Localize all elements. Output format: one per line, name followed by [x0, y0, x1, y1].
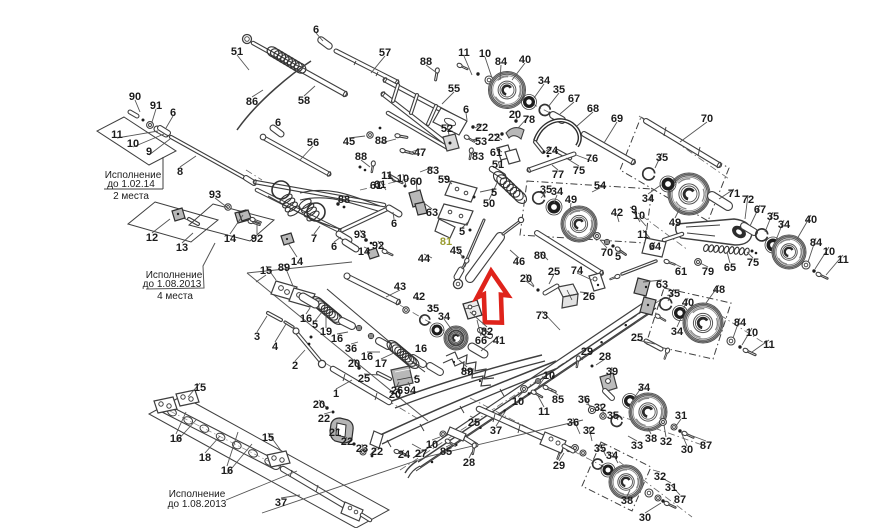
svg-text:69: 69	[611, 113, 623, 125]
svg-text:57: 57	[379, 47, 391, 59]
svg-text:13: 13	[176, 242, 188, 254]
svg-text:88: 88	[375, 135, 387, 147]
svg-text:11: 11	[538, 406, 550, 418]
svg-text:30: 30	[639, 512, 651, 524]
svg-text:85: 85	[552, 394, 564, 406]
svg-text:2 места: 2 места	[113, 191, 149, 202]
svg-text:37: 37	[275, 497, 287, 509]
svg-text:80: 80	[534, 250, 546, 262]
svg-text:25: 25	[548, 266, 560, 278]
svg-text:17: 17	[375, 358, 387, 370]
svg-text:5: 5	[414, 374, 420, 386]
svg-text:35: 35	[553, 84, 565, 96]
svg-text:14: 14	[358, 246, 371, 258]
svg-text:74: 74	[571, 265, 584, 277]
svg-text:14: 14	[224, 233, 237, 245]
svg-text:8: 8	[177, 166, 183, 178]
svg-text:49: 49	[565, 194, 577, 206]
svg-text:76: 76	[586, 153, 598, 165]
svg-text:10: 10	[746, 327, 758, 339]
svg-text:23: 23	[356, 443, 368, 455]
svg-text:87: 87	[674, 494, 686, 506]
svg-text:93: 93	[209, 189, 221, 201]
svg-text:50: 50	[483, 198, 495, 210]
svg-text:16: 16	[415, 343, 427, 355]
svg-text:25: 25	[631, 332, 643, 344]
svg-text:32: 32	[660, 436, 672, 448]
svg-text:42: 42	[413, 291, 425, 303]
svg-text:11: 11	[111, 129, 123, 141]
svg-text:88: 88	[338, 194, 350, 206]
svg-text:40: 40	[519, 54, 531, 66]
svg-text:14: 14	[291, 256, 304, 268]
svg-text:34: 34	[671, 326, 684, 338]
svg-text:7: 7	[311, 233, 317, 245]
svg-text:67: 67	[754, 204, 766, 216]
svg-text:34: 34	[538, 75, 551, 87]
svg-text:20: 20	[509, 109, 521, 121]
svg-text:16: 16	[300, 313, 312, 325]
svg-text:6: 6	[170, 107, 176, 119]
svg-text:35: 35	[668, 288, 680, 300]
svg-text:61: 61	[370, 180, 382, 192]
svg-text:20: 20	[520, 273, 532, 285]
svg-text:58: 58	[298, 95, 310, 107]
svg-text:10: 10	[633, 210, 645, 222]
svg-text:70: 70	[701, 113, 713, 125]
svg-text:35: 35	[607, 410, 619, 422]
svg-text:83: 83	[472, 151, 484, 163]
svg-text:16: 16	[361, 351, 373, 363]
svg-text:48: 48	[713, 284, 725, 296]
svg-text:89: 89	[461, 366, 473, 378]
svg-text:31: 31	[665, 482, 677, 494]
svg-text:36: 36	[578, 394, 590, 406]
svg-text:15: 15	[194, 382, 206, 394]
svg-text:92: 92	[372, 240, 384, 252]
svg-text:6: 6	[463, 104, 469, 116]
svg-text:11: 11	[763, 339, 775, 351]
svg-text:93: 93	[354, 229, 366, 241]
svg-text:47: 47	[414, 147, 426, 159]
svg-text:10: 10	[426, 439, 438, 451]
svg-text:до 1.08.2013: до 1.08.2013	[143, 279, 202, 290]
svg-text:63: 63	[656, 279, 668, 291]
svg-text:78: 78	[523, 114, 535, 126]
svg-text:35: 35	[656, 152, 668, 164]
svg-text:28: 28	[463, 457, 475, 469]
svg-text:32: 32	[594, 402, 606, 414]
svg-text:55: 55	[448, 83, 460, 95]
svg-text:88: 88	[420, 56, 432, 68]
svg-text:28: 28	[599, 351, 611, 363]
svg-text:37: 37	[490, 425, 502, 437]
svg-text:90: 90	[129, 91, 141, 103]
svg-text:24: 24	[546, 145, 559, 157]
svg-text:29: 29	[553, 460, 565, 472]
svg-text:34: 34	[551, 186, 564, 198]
svg-text:49: 49	[669, 217, 681, 229]
svg-text:44: 44	[418, 253, 431, 265]
svg-text:12: 12	[146, 232, 158, 244]
svg-text:22: 22	[476, 122, 488, 134]
svg-text:25: 25	[358, 373, 370, 385]
svg-text:34: 34	[642, 193, 655, 205]
svg-text:3: 3	[254, 331, 260, 343]
svg-text:34: 34	[438, 311, 451, 323]
svg-text:4 места: 4 места	[157, 291, 193, 302]
svg-text:29: 29	[581, 346, 593, 358]
svg-text:6: 6	[391, 218, 397, 230]
svg-text:77: 77	[552, 169, 564, 181]
svg-text:71: 71	[728, 188, 740, 200]
svg-text:53: 53	[475, 136, 487, 148]
svg-text:65: 65	[724, 262, 736, 274]
svg-text:39: 39	[606, 366, 618, 378]
svg-text:5: 5	[615, 251, 621, 263]
svg-text:22: 22	[371, 446, 383, 458]
svg-text:36: 36	[567, 417, 579, 429]
svg-text:84: 84	[495, 56, 508, 68]
svg-text:24: 24	[398, 449, 411, 461]
svg-text:67: 67	[568, 93, 580, 105]
svg-text:10: 10	[823, 246, 835, 258]
svg-text:32: 32	[583, 425, 595, 437]
svg-text:21: 21	[329, 427, 341, 439]
svg-text:75: 75	[573, 165, 585, 177]
svg-text:46: 46	[513, 256, 525, 268]
svg-text:84: 84	[810, 237, 823, 249]
svg-text:31: 31	[675, 410, 687, 422]
svg-text:15: 15	[260, 265, 272, 277]
svg-text:22: 22	[341, 436, 353, 448]
svg-text:87: 87	[700, 440, 712, 452]
svg-text:16: 16	[170, 433, 182, 445]
svg-text:79: 79	[702, 266, 714, 278]
svg-text:86: 86	[246, 96, 258, 108]
svg-text:40: 40	[682, 297, 694, 309]
svg-text:38: 38	[621, 495, 633, 507]
svg-text:52: 52	[441, 123, 453, 135]
svg-text:88: 88	[355, 151, 367, 163]
svg-text:34: 34	[778, 219, 791, 231]
svg-text:11: 11	[837, 254, 849, 266]
svg-text:61: 61	[675, 266, 687, 278]
svg-text:22: 22	[318, 413, 330, 425]
svg-text:40: 40	[805, 214, 817, 226]
svg-text:10: 10	[512, 396, 524, 408]
svg-text:20: 20	[348, 358, 360, 370]
svg-text:25: 25	[468, 417, 480, 429]
svg-text:1: 1	[333, 388, 339, 400]
svg-text:20: 20	[313, 399, 325, 411]
svg-text:89: 89	[278, 262, 290, 274]
svg-text:75: 75	[747, 257, 759, 269]
svg-text:10: 10	[127, 138, 139, 150]
svg-text:51: 51	[492, 159, 504, 171]
svg-text:6: 6	[275, 117, 281, 129]
svg-text:11: 11	[637, 229, 649, 241]
svg-text:56: 56	[307, 137, 319, 149]
svg-text:45: 45	[343, 136, 355, 148]
svg-text:41: 41	[493, 335, 505, 347]
svg-text:18: 18	[199, 452, 211, 464]
svg-text:38: 38	[645, 433, 657, 445]
svg-text:10: 10	[543, 370, 555, 382]
svg-text:63: 63	[426, 207, 438, 219]
svg-text:42: 42	[611, 207, 623, 219]
svg-text:6: 6	[331, 241, 337, 253]
svg-text:60: 60	[410, 176, 422, 188]
svg-text:15: 15	[262, 432, 274, 444]
svg-text:54: 54	[594, 180, 607, 192]
svg-text:91: 91	[150, 100, 162, 112]
svg-text:30: 30	[681, 444, 693, 456]
svg-text:2: 2	[292, 360, 298, 372]
svg-text:64: 64	[649, 241, 662, 253]
svg-text:5: 5	[459, 226, 465, 238]
svg-text:до 1.02.14: до 1.02.14	[107, 179, 155, 190]
svg-text:92: 92	[251, 233, 263, 245]
svg-text:45: 45	[450, 245, 462, 257]
svg-text:10: 10	[397, 173, 409, 185]
svg-text:до 1.08.2013: до 1.08.2013	[168, 499, 227, 510]
svg-text:4: 4	[272, 341, 279, 353]
svg-text:16: 16	[221, 465, 233, 477]
svg-text:68: 68	[587, 103, 599, 115]
svg-text:11: 11	[458, 47, 470, 59]
svg-text:70: 70	[601, 247, 613, 259]
svg-text:33: 33	[631, 440, 643, 452]
svg-text:16: 16	[331, 333, 343, 345]
svg-text:85: 85	[440, 446, 452, 458]
svg-text:6: 6	[313, 24, 319, 36]
svg-text:73: 73	[536, 310, 548, 322]
svg-text:61: 61	[490, 147, 502, 159]
svg-text:72: 72	[742, 194, 754, 206]
svg-text:59: 59	[438, 174, 450, 186]
svg-text:94: 94	[404, 385, 417, 397]
svg-text:82: 82	[481, 326, 493, 338]
svg-text:22: 22	[488, 132, 500, 144]
svg-text:20: 20	[389, 389, 401, 401]
svg-text:9: 9	[146, 146, 152, 158]
svg-text:10: 10	[479, 48, 491, 60]
svg-text:35: 35	[594, 443, 606, 455]
svg-text:26: 26	[583, 291, 595, 303]
svg-text:51: 51	[231, 46, 243, 58]
svg-text:34: 34	[638, 382, 651, 394]
svg-text:34: 34	[606, 450, 619, 462]
svg-text:43: 43	[394, 281, 406, 293]
svg-text:5: 5	[312, 319, 318, 331]
svg-text:36: 36	[345, 343, 357, 355]
